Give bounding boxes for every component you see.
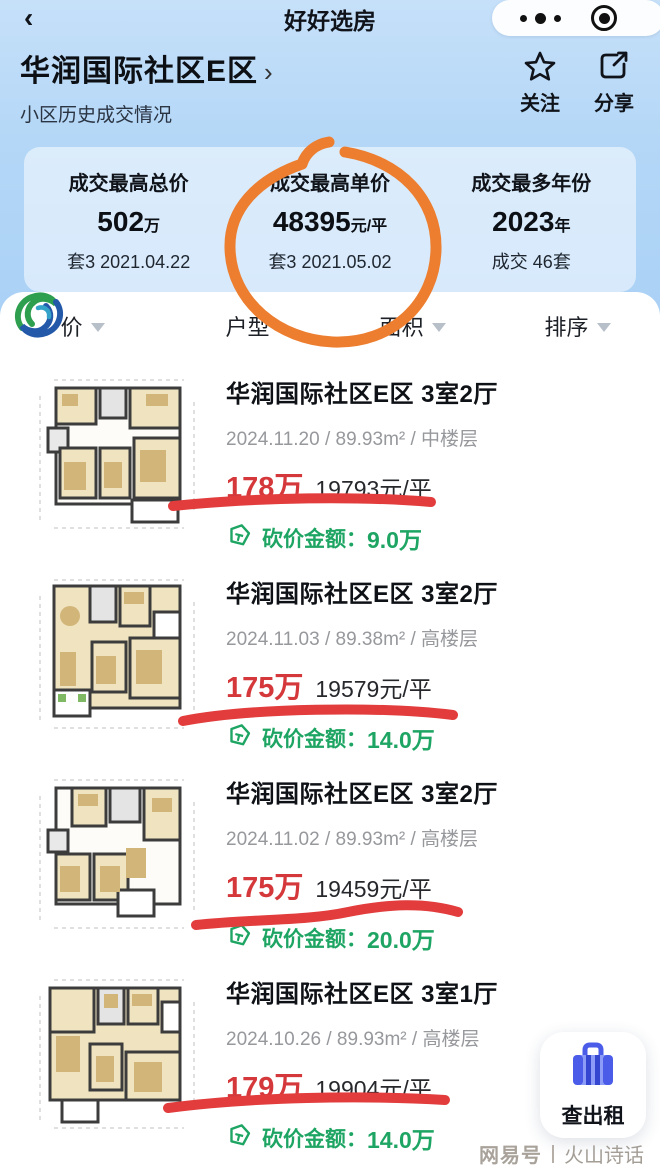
filter-layout[interactable]: 户型 bbox=[165, 308, 330, 344]
follow-label: 关注 bbox=[520, 87, 560, 116]
listing-price: 179万 bbox=[226, 1064, 303, 1106]
chevron-down-icon bbox=[432, 323, 446, 332]
listing-price: 175万 bbox=[226, 664, 303, 706]
listing-price: 175万 bbox=[226, 864, 303, 906]
source-watermark: 网易号 火山诗话 bbox=[479, 1139, 644, 1168]
listing-title: 华润国际社区E区 3室1厅 bbox=[226, 974, 642, 1009]
filter-bar: 价 户型 面积 排序 bbox=[0, 292, 660, 352]
price-tag-icon bbox=[226, 523, 262, 554]
discount-value: 14.0万 bbox=[367, 721, 435, 755]
check-rentals-button[interactable]: 查出租 bbox=[540, 1032, 646, 1138]
listing-item[interactable]: 华润国际社区E区 3室2厅 2024.11.03 / 89.38m² / 高楼层… bbox=[0, 552, 660, 752]
stat-label: 成交最高总价 bbox=[28, 167, 229, 196]
listing-title: 华润国际社区E区 3室2厅 bbox=[226, 574, 642, 609]
filter-area[interactable]: 面积 bbox=[330, 308, 495, 344]
stat-meta: 成交 46套 bbox=[431, 248, 632, 274]
listing-unit-price: 19793元/平 bbox=[315, 470, 431, 504]
stat-value: 48395 bbox=[273, 206, 351, 237]
check-rentals-label: 查出租 bbox=[562, 1100, 625, 1130]
discount-value: 14.0万 bbox=[367, 1121, 435, 1155]
floor-plan-image bbox=[34, 972, 202, 1134]
listing-unit-price: 19459元/平 bbox=[315, 870, 431, 904]
brand-logo-icon bbox=[8, 284, 70, 346]
miniprogram-capsule bbox=[492, 0, 660, 36]
briefcase-icon bbox=[567, 1041, 619, 1094]
stat-highest-total-price: 成交最高总价 502万 套3 2021.04.22 bbox=[28, 167, 229, 274]
stat-unit: 年 bbox=[554, 218, 570, 235]
share-button[interactable]: 分享 bbox=[594, 50, 634, 127]
share-icon bbox=[597, 50, 631, 82]
listing-info: 2024.11.03 / 89.38m² / 高楼层 bbox=[226, 624, 642, 651]
listing-info: 2024.11.02 / 89.93m² / 高楼层 bbox=[226, 824, 642, 851]
floor-plan-image bbox=[34, 372, 202, 534]
app-title: 好好选房 bbox=[284, 2, 376, 36]
star-icon bbox=[523, 50, 557, 82]
follow-button[interactable]: 关注 bbox=[520, 50, 560, 127]
filter-sort[interactable]: 排序 bbox=[495, 308, 660, 344]
listing-item[interactable]: 华润国际社区E区 3室2厅 2024.11.02 / 89.93m² / 高楼层… bbox=[0, 752, 660, 952]
floor-plan-image bbox=[34, 772, 202, 934]
more-icon[interactable] bbox=[520, 13, 561, 24]
stat-value: 2023 bbox=[492, 206, 554, 237]
stat-meta: 套3 2021.04.22 bbox=[28, 248, 229, 274]
chevron-down-icon bbox=[91, 323, 105, 332]
chevron-right-icon: › bbox=[264, 57, 274, 87]
source-logo-text: 网易号 bbox=[479, 1139, 542, 1168]
community-name[interactable]: 华润国际社区E区› bbox=[20, 46, 274, 90]
discount-label: 砍价金额： bbox=[262, 1123, 367, 1153]
app-screen: 好好选房 好好选房 小程序 小程序 好好选房 好好选房 小程序 好好选房 好好选… bbox=[0, 0, 660, 1170]
divider bbox=[552, 1145, 554, 1163]
stats-card: 成交最高总价 502万 套3 2021.04.22 成交最高单价 48395元/… bbox=[24, 147, 636, 292]
source-name: 火山诗话 bbox=[564, 1139, 644, 1168]
filter-label: 面积 bbox=[379, 310, 423, 342]
stat-unit: 元/平 bbox=[351, 218, 387, 235]
listing-item[interactable]: 华润国际社区E区 3室2厅 2024.11.20 / 89.93m² / 中楼层… bbox=[0, 352, 660, 552]
discount-label: 砍价金额： bbox=[262, 923, 367, 953]
discount-value: 9.0万 bbox=[367, 521, 422, 555]
page-subtitle: 小区历史成交情况 bbox=[20, 100, 274, 127]
filter-label: 户型 bbox=[225, 310, 269, 342]
listing-price: 178万 bbox=[226, 464, 303, 506]
close-circle-icon[interactable] bbox=[591, 5, 617, 31]
stat-label: 成交最多年份 bbox=[431, 167, 632, 196]
listing-title: 华润国际社区E区 3室2厅 bbox=[226, 374, 642, 409]
stat-label: 成交最高单价 bbox=[229, 167, 430, 196]
price-tag-icon bbox=[226, 923, 262, 954]
filter-label: 排序 bbox=[544, 310, 588, 342]
floor-plan-image bbox=[34, 572, 202, 734]
discount-value: 20.0万 bbox=[367, 921, 435, 955]
price-tag-icon bbox=[226, 723, 262, 754]
listing-unit-price: 19904元/平 bbox=[315, 1070, 431, 1104]
back-icon[interactable]: ‹ bbox=[24, 2, 33, 34]
stat-most-deals-year: 成交最多年份 2023年 成交 46套 bbox=[431, 167, 632, 274]
title-row: 华润国际社区E区› 小区历史成交情况 关注 分享 bbox=[0, 38, 660, 127]
listing-title: 华润国际社区E区 3室2厅 bbox=[226, 774, 642, 809]
discount-label: 砍价金额： bbox=[262, 723, 367, 753]
listing-info: 2024.11.20 / 89.93m² / 中楼层 bbox=[226, 424, 642, 451]
listing-unit-price: 19579元/平 bbox=[315, 670, 431, 704]
stat-highest-unit-price: 成交最高单价 48395元/平 套3 2021.05.02 bbox=[229, 167, 430, 274]
stat-value: 502 bbox=[97, 206, 144, 237]
share-label: 分享 bbox=[594, 87, 634, 116]
price-tag-icon bbox=[226, 1123, 262, 1154]
chevron-down-icon bbox=[597, 323, 611, 332]
community-name-text: 华润国际社区E区 bbox=[20, 55, 258, 88]
stat-unit: 万 bbox=[144, 218, 160, 235]
navbar: ‹ 好好选房 bbox=[0, 0, 660, 38]
stat-meta: 套3 2021.05.02 bbox=[229, 248, 430, 274]
discount-label: 砍价金额： bbox=[262, 523, 367, 553]
